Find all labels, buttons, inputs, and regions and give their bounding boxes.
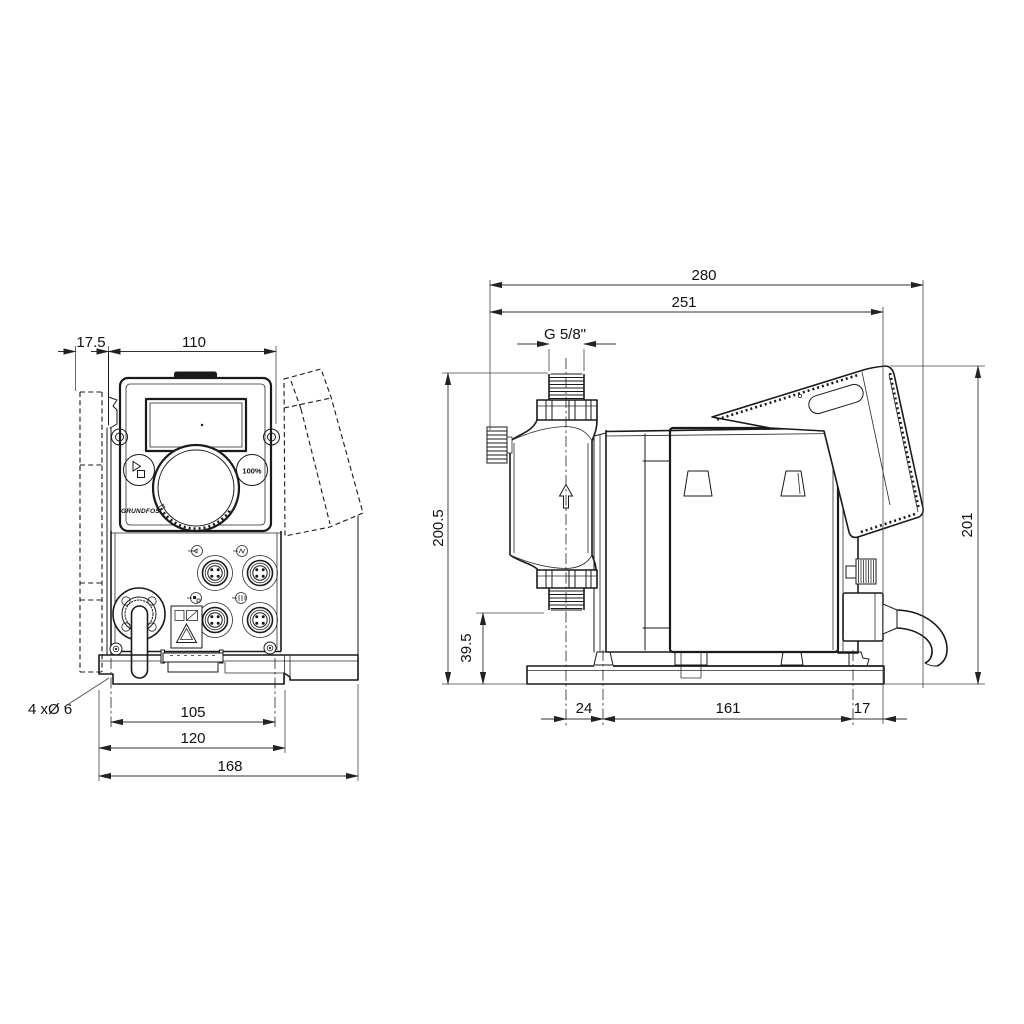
dim-label-251: 251 [671, 294, 696, 311]
dim-label-24: 24 [576, 700, 593, 717]
hole-note-leader [64, 678, 109, 707]
brand-logo: GRUNDFOS [121, 508, 160, 515]
control-panel: 100% GRUNDFOS [112, 372, 280, 532]
connector-socket [198, 556, 233, 591]
front-view: 100% GRUNDFOS [28, 334, 363, 781]
connector-socket [243, 603, 278, 638]
clamp-rail [161, 650, 284, 673]
tilted-control-cube-hidden [284, 369, 363, 656]
dim-label-39-5: 39.5 [458, 633, 475, 662]
dim-label-17-5: 17.5 [76, 334, 105, 351]
dim-label-120: 120 [180, 730, 205, 747]
dim-label-200-5: 200.5 [430, 509, 447, 547]
housing-screw [264, 642, 276, 654]
dim-label-110: 110 [182, 334, 206, 351]
connector-icon [188, 546, 203, 557]
mains-plug-and-cable [843, 593, 947, 666]
connector-socket [243, 556, 278, 591]
base-plate-side [527, 652, 884, 684]
connector-socket [198, 603, 233, 638]
click-wheel-knob [153, 445, 239, 531]
dim-label-280: 280 [691, 267, 716, 284]
display-cursor-dot [201, 424, 203, 426]
cable-gland [846, 559, 876, 584]
connector-icon [187, 593, 202, 604]
mount-tab [781, 471, 805, 496]
suction-valve-thread [549, 588, 584, 610]
dim-label-thread: G 5/8" [544, 326, 586, 343]
dosing-head [487, 374, 597, 610]
power-cable [132, 606, 148, 678]
connector-icon [233, 546, 248, 557]
pump-housing [594, 428, 858, 653]
wall-plate-hidden [80, 392, 102, 672]
dim-label-168: 168 [217, 758, 242, 775]
warning-label [171, 606, 202, 648]
motor-flange [113, 588, 165, 678]
dim-label-161: 161 [715, 700, 740, 717]
mount-tab [684, 471, 712, 496]
connector-icon [232, 593, 247, 604]
dimensional-drawing: 100% GRUNDFOS [0, 0, 1024, 1024]
technical-drawing-page: 100% GRUNDFOS [0, 0, 1024, 1024]
tilted-control-cube [712, 366, 923, 537]
side-view: 280 251 G 5/8" 200.5 39.5 201 24 [430, 267, 985, 728]
dim-label-105: 105 [180, 704, 205, 721]
deaeration-valve-knob [487, 427, 512, 463]
dim-label-201: 201 [959, 512, 976, 537]
union-nut-top [537, 400, 597, 420]
hole-note-label: 4 xØ 6 [28, 701, 72, 718]
housing-screw [110, 643, 122, 655]
discharge-valve-thread [549, 374, 584, 400]
union-nut-bottom [537, 570, 597, 588]
button-100-label: 100% [242, 467, 262, 476]
dim-label-17: 17 [854, 700, 871, 717]
